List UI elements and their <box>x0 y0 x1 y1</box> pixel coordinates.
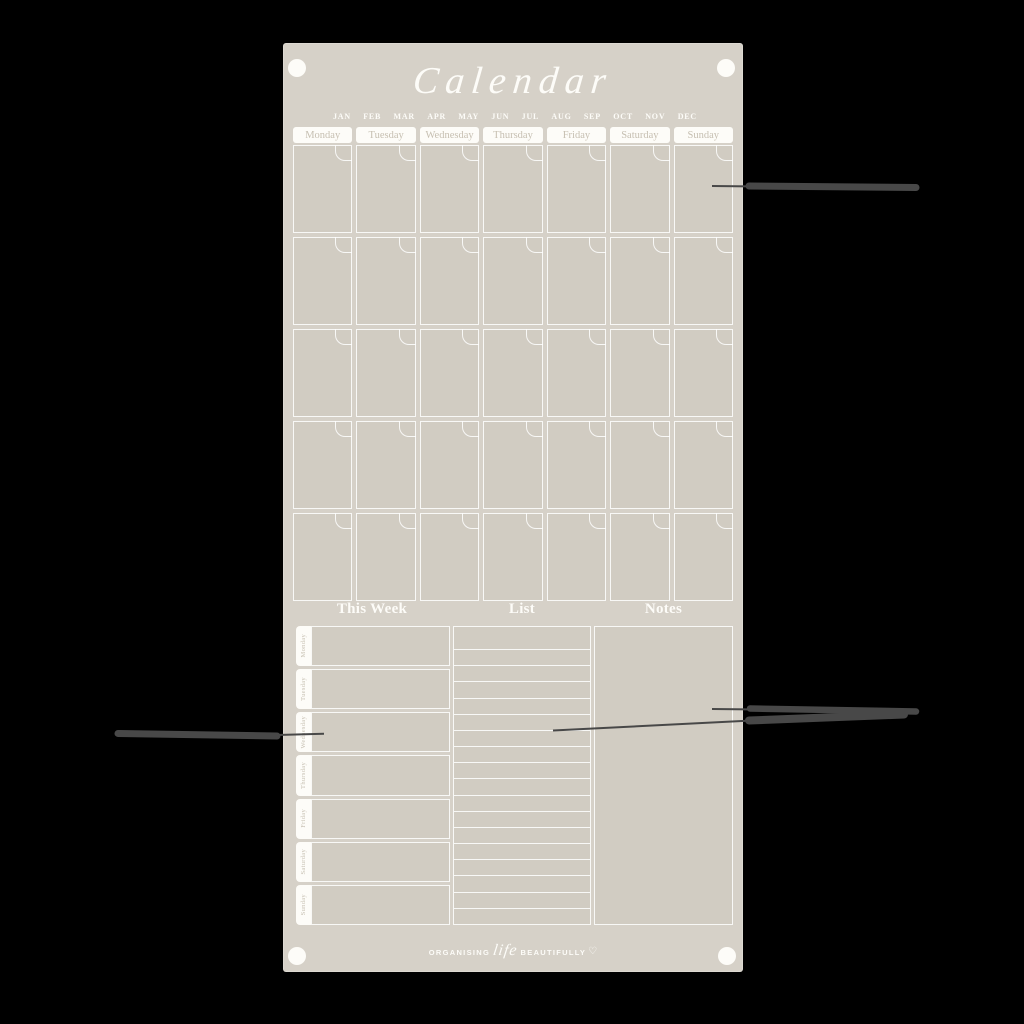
week-row-writing-area <box>311 712 450 752</box>
calendar-day-cell <box>293 329 352 417</box>
week-row-day-tab: Tuesday <box>296 669 311 709</box>
date-corner-notch <box>653 329 670 345</box>
week-row-day-tab: Friday <box>296 799 311 839</box>
date-corner-notch <box>653 421 670 437</box>
date-corner-notch <box>526 145 543 161</box>
date-corner-notch <box>399 513 416 529</box>
brand-text-left: ORGANISING <box>429 948 490 957</box>
week-row: Tuesday <box>296 669 450 709</box>
week-row-day-tab: Monday <box>296 626 311 666</box>
date-corner-notch <box>589 513 606 529</box>
weekday-header: Wednesday <box>420 127 479 143</box>
date-corner-notch <box>462 513 479 529</box>
week-row-writing-area <box>311 842 450 882</box>
calendar-day-cell <box>483 329 542 417</box>
list-title: List <box>453 601 591 621</box>
calendar-day-cell <box>547 513 606 601</box>
notes-section <box>594 626 733 925</box>
month-label: FEB <box>363 112 381 121</box>
calendar-day-cell <box>483 513 542 601</box>
heart-icon: ♡ <box>588 946 597 957</box>
month-label: OCT <box>613 112 633 121</box>
list-ruled-line <box>454 730 590 746</box>
date-corner-notch <box>462 237 479 253</box>
weekday-header: Thursday <box>483 127 542 143</box>
calendar-day-cell <box>610 329 669 417</box>
list-ruled-line <box>454 698 590 714</box>
month-label: JAN <box>333 112 351 121</box>
calendar-day-cell <box>483 145 542 233</box>
list-ruled-line <box>454 843 590 859</box>
list-ruled-line <box>454 892 590 908</box>
date-corner-notch <box>335 329 352 345</box>
date-corner-notch <box>589 329 606 345</box>
brand-text-script: life <box>492 942 519 960</box>
weekday-header: Monday <box>293 127 352 143</box>
list-ruled-line <box>454 859 590 875</box>
brand-text-right: BEAUTIFULLY <box>521 948 587 957</box>
date-corner-notch <box>399 237 416 253</box>
date-corner-notch <box>589 145 606 161</box>
week-row: Monday <box>296 626 450 666</box>
month-row: JANFEBMARAPRMAYJUNJULAUGSEPOCTNOVDEC <box>333 109 697 123</box>
week-row-writing-area <box>311 885 450 925</box>
week-row: Thursday <box>296 755 450 795</box>
calendar-day-cell <box>293 513 352 601</box>
week-row-day-tab: Saturday <box>296 842 311 882</box>
calendar-day-cell <box>674 145 733 233</box>
date-corner-notch <box>716 513 733 529</box>
week-row-day-tab: Thursday <box>296 755 311 795</box>
month-label: MAY <box>458 112 479 121</box>
calendar-day-cell <box>420 329 479 417</box>
calendar-day-cell <box>610 145 669 233</box>
weekday-header: Sunday <box>674 127 733 143</box>
calendar-day-cell <box>420 145 479 233</box>
date-corner-notch <box>589 237 606 253</box>
week-row: Sunday <box>296 885 450 925</box>
week-row-day-tab: Wednesday <box>296 712 311 752</box>
list-ruled-line <box>454 827 590 843</box>
list-ruled-line <box>454 681 590 697</box>
calendar-day-cell <box>547 237 606 325</box>
week-row-writing-area <box>311 799 450 839</box>
calendar-day-cell <box>420 237 479 325</box>
list-section <box>453 626 591 925</box>
date-corner-notch <box>526 513 543 529</box>
date-corner-notch <box>399 329 416 345</box>
calendar-day-cell <box>547 421 606 509</box>
date-corner-notch <box>462 329 479 345</box>
date-corner-notch <box>716 329 733 345</box>
month-label: NOV <box>645 112 665 121</box>
weekday-header: Friday <box>547 127 606 143</box>
calendar-day-cell <box>356 329 415 417</box>
date-corner-notch <box>462 421 479 437</box>
date-corner-notch <box>399 145 416 161</box>
brand-logo: ORGANISING life BEAUTIFULLY ♡ <box>283 940 743 964</box>
list-ruled-line <box>454 908 590 924</box>
board-title: Calendar <box>281 59 746 103</box>
list-ruled-line <box>454 875 590 891</box>
list-ruled-line <box>454 746 590 762</box>
calendar-day-cell <box>674 237 733 325</box>
date-corner-notch <box>335 421 352 437</box>
calendar-day-cell <box>674 329 733 417</box>
calendar-day-cell <box>610 421 669 509</box>
this-week-title: This Week <box>292 601 452 621</box>
list-ruled-line <box>454 811 590 827</box>
notes-title: Notes <box>594 601 733 621</box>
date-corner-notch <box>526 329 543 345</box>
week-row-writing-area <box>311 755 450 795</box>
calendar-day-cell <box>293 145 352 233</box>
month-label: AUG <box>551 112 571 121</box>
week-row: Wednesday <box>296 712 450 752</box>
date-corner-notch <box>335 513 352 529</box>
date-corner-notch <box>399 421 416 437</box>
week-row-writing-area <box>311 626 450 666</box>
month-label: JUL <box>522 112 540 121</box>
date-corner-notch <box>653 145 670 161</box>
calendar-day-cell <box>610 237 669 325</box>
weekday-header: Tuesday <box>356 127 415 143</box>
calendar-day-cell <box>547 145 606 233</box>
calendar-day-cell <box>483 421 542 509</box>
list-ruled-line <box>454 649 590 665</box>
date-corner-notch <box>653 513 670 529</box>
calendar-day-cell <box>293 421 352 509</box>
date-corner-notch <box>716 145 733 161</box>
date-corner-notch <box>653 237 670 253</box>
calendar-day-cell <box>356 421 415 509</box>
calendar-day-cell <box>483 237 542 325</box>
month-label: MAR <box>393 112 415 121</box>
weekday-header: Saturday <box>610 127 669 143</box>
date-corner-notch <box>335 237 352 253</box>
monthly-grid <box>293 145 733 601</box>
calendar-day-cell <box>420 513 479 601</box>
week-row-day-tab: Sunday <box>296 885 311 925</box>
week-row: Friday <box>296 799 450 839</box>
list-ruled-line <box>454 665 590 681</box>
date-corner-notch <box>462 145 479 161</box>
date-corner-notch <box>589 421 606 437</box>
weekday-header-row: MondayTuesdayWednesdayThursdayFridaySatu… <box>293 127 733 143</box>
month-label: APR <box>427 112 446 121</box>
calendar-day-cell <box>547 329 606 417</box>
month-label: JUN <box>491 112 509 121</box>
list-ruled-line <box>454 795 590 811</box>
month-label: SEP <box>584 112 601 121</box>
list-ruled-line <box>454 714 590 730</box>
date-corner-notch <box>716 421 733 437</box>
calendar-day-cell <box>293 237 352 325</box>
date-corner-notch <box>526 421 543 437</box>
calendar-day-cell <box>356 145 415 233</box>
week-row: Saturday <box>296 842 450 882</box>
week-row-writing-area <box>311 669 450 709</box>
calendar-day-cell <box>356 237 415 325</box>
product-image: Calendar JANFEBMARAPRMAYJUNJULAUGSEPOCTN… <box>0 0 1024 1024</box>
calendar-day-cell <box>674 513 733 601</box>
date-corner-notch <box>526 237 543 253</box>
calendar-day-cell <box>674 421 733 509</box>
list-ruled-line <box>454 778 590 794</box>
this-week-section: Monday Tuesday Wednesday Thursday <box>296 626 450 925</box>
month-label: DEC <box>678 112 697 121</box>
calendar-board: Calendar JANFEBMARAPRMAYJUNJULAUGSEPOCTN… <box>283 43 743 972</box>
calendar-day-cell <box>610 513 669 601</box>
date-corner-notch <box>335 145 352 161</box>
calendar-day-cell <box>420 421 479 509</box>
date-corner-notch <box>716 237 733 253</box>
list-ruled-line <box>454 762 590 778</box>
calendar-day-cell <box>356 513 415 601</box>
